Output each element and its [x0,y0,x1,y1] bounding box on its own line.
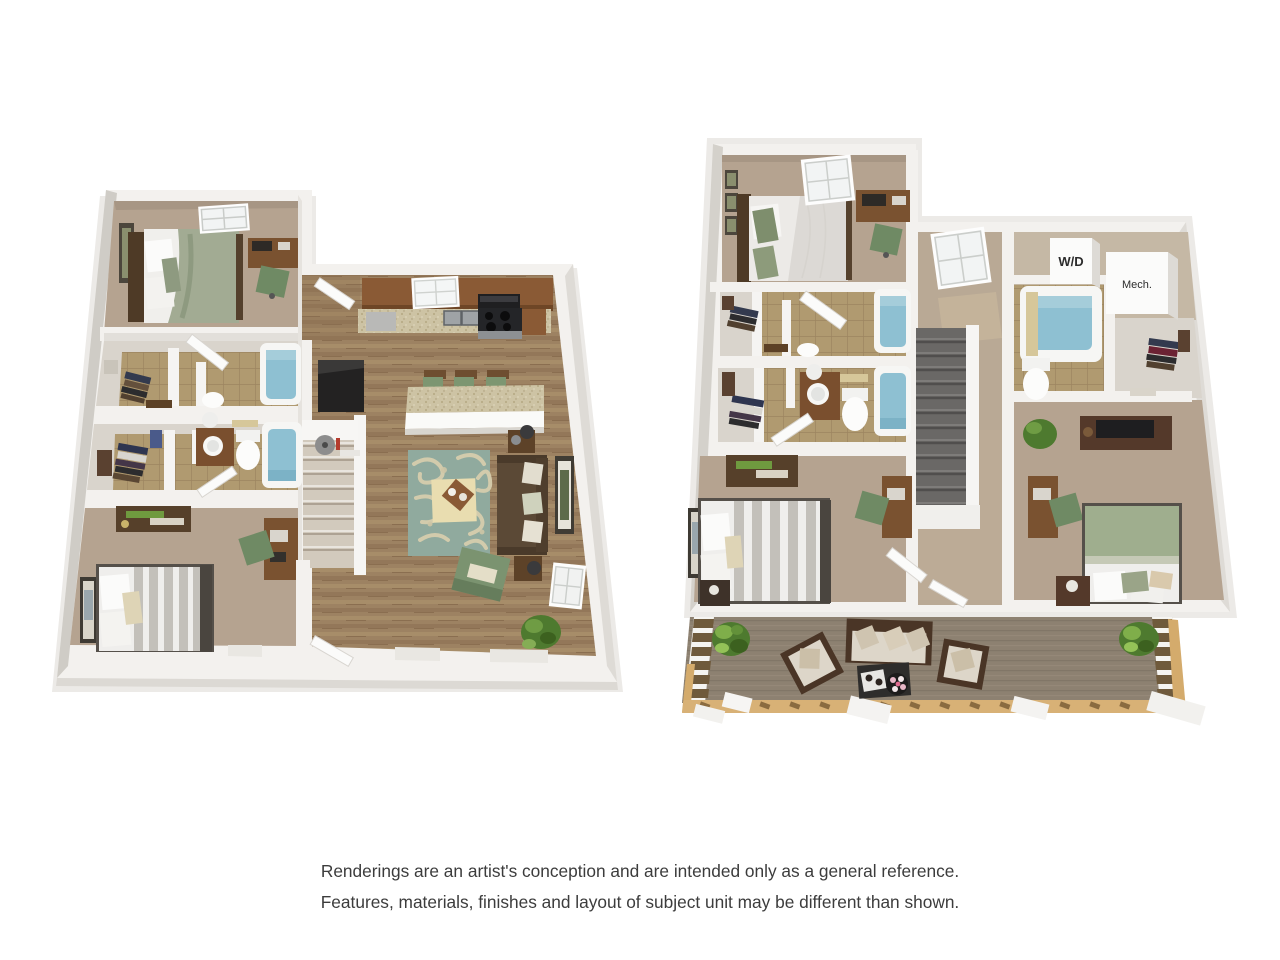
svg-text:Features, materials, finishes: Features, materials, finishes and layout… [321,892,959,912]
svg-text:Renderings are an artist's con: Renderings are an artist's conception an… [321,861,959,881]
svg-text:W/D: W/D [1058,254,1083,269]
svg-text:Mech.: Mech. [1122,279,1152,291]
